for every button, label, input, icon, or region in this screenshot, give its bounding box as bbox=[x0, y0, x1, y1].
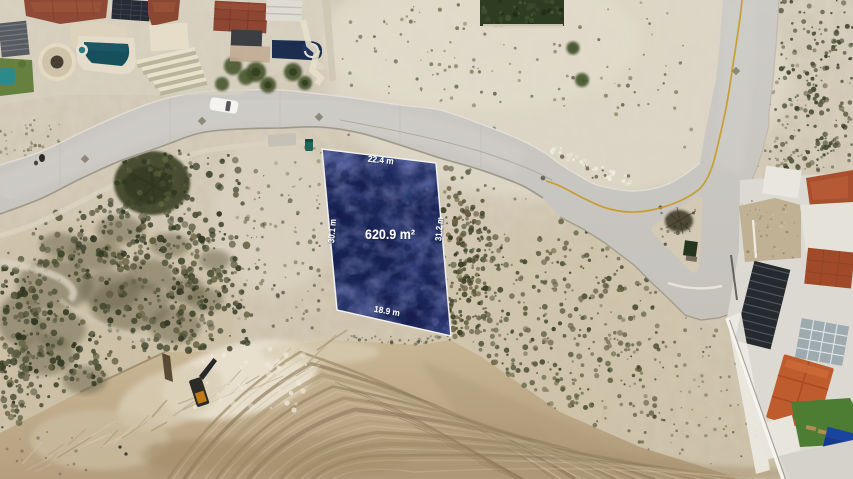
svg-text:31.2 m: 31.2 m bbox=[433, 217, 445, 242]
svg-text:30.1 m: 30.1 m bbox=[326, 219, 338, 244]
svg-text:620.9 m²: 620.9 m² bbox=[365, 226, 415, 242]
